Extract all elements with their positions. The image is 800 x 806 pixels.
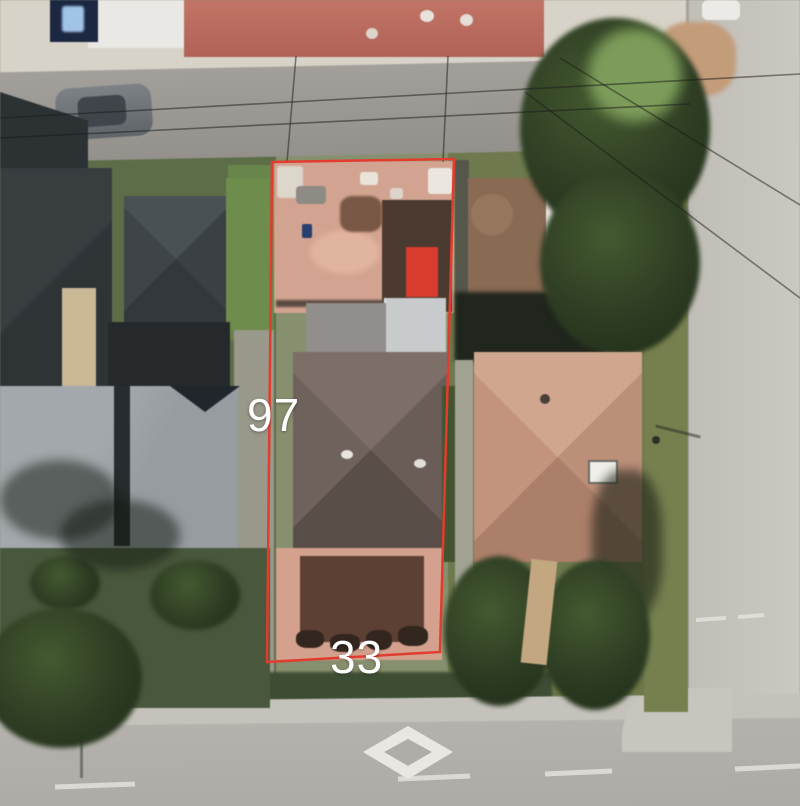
soil-patch bbox=[340, 196, 382, 232]
tree-light-fringe bbox=[580, 20, 690, 130]
roof-vent bbox=[460, 14, 473, 26]
neighbor-lawn bbox=[226, 178, 270, 330]
aerial-imagery-layer bbox=[0, 0, 800, 806]
tan-driveway bbox=[62, 288, 96, 392]
tree-top-right bbox=[540, 170, 700, 355]
white-building-roof bbox=[88, 0, 188, 48]
debris bbox=[390, 188, 403, 199]
debris bbox=[428, 168, 452, 194]
subject-house-roof bbox=[293, 352, 448, 548]
tree-shadow bbox=[60, 500, 180, 570]
red-tile-roof-building bbox=[184, 0, 544, 57]
parked-car-white bbox=[702, 0, 740, 20]
yard-clutter bbox=[296, 630, 324, 648]
bush bbox=[150, 560, 240, 630]
dirt-mound bbox=[310, 230, 380, 274]
neighbor-hip-roof bbox=[124, 196, 228, 322]
hedge bbox=[442, 386, 456, 562]
chimney bbox=[540, 394, 550, 404]
parcel-depth-label: 97 bbox=[247, 392, 300, 438]
neighbor-roof-dark-lower bbox=[108, 322, 230, 392]
satellite-map-view[interactable]: 97 33 bbox=[0, 0, 800, 806]
gravel-patch bbox=[468, 178, 548, 300]
roof-vent bbox=[414, 459, 426, 468]
roof-vent bbox=[420, 10, 434, 22]
utility-pole bbox=[652, 436, 660, 444]
roof-vent bbox=[341, 450, 353, 459]
blue-tarp-highlight bbox=[62, 6, 84, 32]
debris bbox=[360, 172, 378, 185]
parcel-frontage-label: 33 bbox=[330, 634, 383, 680]
roof-vent bbox=[366, 28, 378, 39]
debris bbox=[296, 186, 326, 204]
house-roof-upper-section bbox=[306, 303, 386, 356]
debris bbox=[302, 224, 312, 238]
yard-clutter bbox=[398, 626, 428, 646]
red-shed-roof bbox=[406, 247, 438, 297]
shrubs bbox=[540, 560, 650, 710]
